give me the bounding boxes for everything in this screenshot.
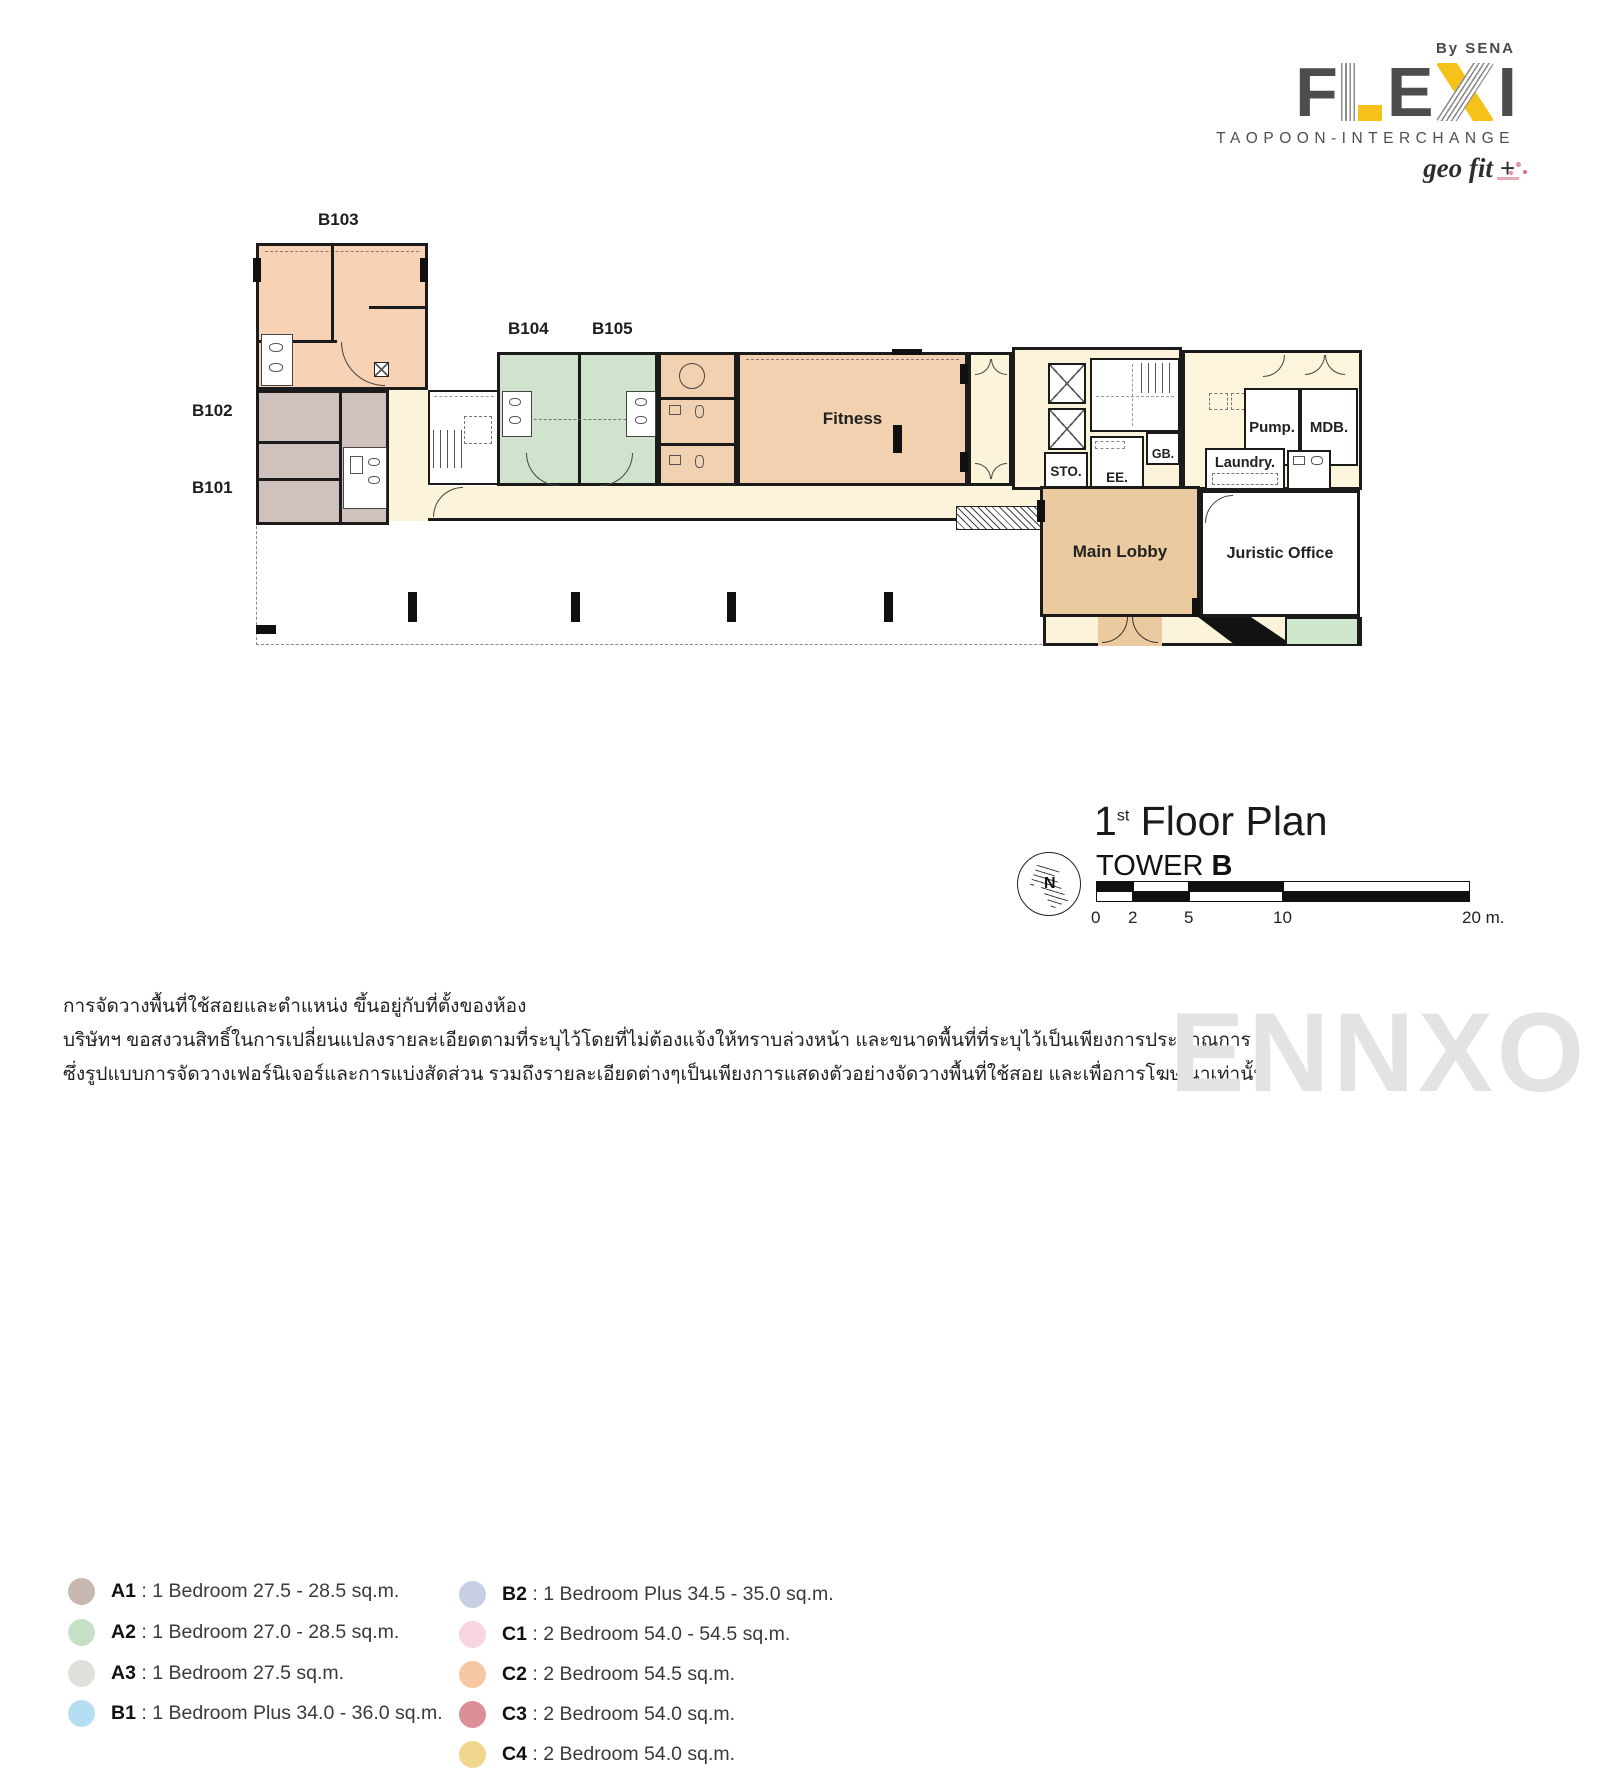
elevator-shaft (1048, 408, 1086, 450)
door-arc (975, 463, 991, 479)
juristic-office: Juristic Office (1200, 490, 1360, 617)
ennxo-watermark: ENNXO (1170, 988, 1588, 1117)
wc-fixture-icon (695, 405, 704, 418)
legend-dot-a2 (68, 1619, 95, 1646)
column-marker (571, 592, 580, 622)
legend-desc: 1 Bedroom Plus 34.5 - 35.0 sq.m. (543, 1583, 833, 1605)
entrance-door-arc (1132, 617, 1158, 643)
label-b104: B104 (508, 319, 549, 339)
main-lobby: Main Lobby (1040, 486, 1200, 617)
legend-code: C4 (502, 1743, 527, 1765)
door-arc (1325, 355, 1345, 375)
sink-fixture-icon (368, 476, 380, 484)
legend-item-b2: B2 : 1 Bedroom Plus 34.5 - 35.0 sq.m. (459, 1581, 834, 1608)
legend-sep: : (136, 1702, 152, 1724)
disclaimer: การจัดวางพื้นที่ใช้สอยและตำแหน่ง ขึ้นอยู… (63, 990, 1013, 1092)
bathroom-core (343, 447, 387, 509)
scale-tick-0: 0 (1091, 908, 1100, 928)
legend-item-a1: A1 : 1 Bedroom 27.5 - 28.5 sq.m. (68, 1578, 399, 1605)
legend-dot-b2 (459, 1581, 486, 1608)
legend-dot-b1 (68, 1700, 95, 1727)
tower-title: TOWER B (1096, 850, 1232, 883)
column-marker (408, 592, 417, 622)
legend-sep: : (527, 1743, 543, 1765)
shower-fixture-icon (350, 456, 363, 474)
title-block: 1st Floor Plan TOWER B N 0 2 5 10 20 m. (1000, 790, 1520, 940)
compass-icon: N (1017, 852, 1081, 916)
balcony-dashed-line (265, 251, 419, 252)
door-arc (991, 463, 1007, 479)
legend-dot-c4 (459, 1741, 486, 1768)
floor-plan-text: Floor Plan (1141, 798, 1328, 844)
legend-sep: : (136, 1662, 152, 1684)
legend-code: B1 (111, 1702, 136, 1724)
scale-segment (1189, 891, 1283, 902)
legend-desc: 2 Bedroom 54.0 sq.m. (543, 1703, 735, 1725)
legend-sep: : (136, 1621, 152, 1643)
floor-plan-page: { "colors": { "wall": "#1b1b1b", "peach"… (0, 0, 1600, 1131)
fitness-room: Fitness (737, 352, 968, 486)
label-b102: B102 (192, 401, 233, 421)
door-arc (526, 453, 559, 486)
electrical-room: EE. (1090, 436, 1144, 490)
floor-number: 1 (1094, 798, 1117, 844)
laundry-label: Laundry. (1207, 452, 1283, 474)
label-b103: B103 (318, 210, 359, 230)
interior-wall (331, 246, 334, 342)
tower-letter: B (1211, 850, 1232, 882)
legend-item-c3: C3 : 2 Bedroom 54.0 sq.m. (459, 1701, 735, 1728)
toilet-fixture-icon (509, 416, 521, 424)
scale-segment (1096, 891, 1133, 902)
corridor-vertical (389, 390, 428, 521)
wall-jamb (1192, 598, 1200, 618)
interior-wall (369, 306, 425, 309)
fitness-label: Fitness (740, 355, 965, 483)
legend-item-a2: A2 : 1 Bedroom 27.0 - 28.5 sq.m. (68, 1619, 399, 1646)
sink-fixture-icon (1293, 456, 1305, 465)
legend: A1 : 1 Bedroom 27.5 - 28.5 sq.m. A2 : 1 … (0, 780, 1000, 1010)
wall-jamb (253, 258, 261, 282)
legend-item-c1: C1 : 2 Bedroom 54.0 - 54.5 sq.m. (459, 1621, 790, 1648)
disclaimer-line-1: การจัดวางพื้นที่ใช้สอยและตำแหน่ง ขึ้นอยู… (63, 990, 1013, 1024)
legend-sep: : (527, 1583, 543, 1605)
legend-desc: 1 Bedroom 27.5 - 28.5 sq.m. (152, 1580, 399, 1602)
legend-item-c4: C4 : 2 Bedroom 54.0 sq.m. (459, 1741, 735, 1768)
legend-code: A2 (111, 1621, 136, 1643)
bathroom-box (626, 391, 656, 437)
corridor (389, 486, 1040, 521)
label-b105: B105 (592, 319, 633, 339)
stair-treads (1141, 363, 1175, 393)
interior-wall (259, 478, 341, 481)
column-marker (727, 592, 736, 622)
panel-dashed-box (1095, 441, 1125, 449)
stair-dashed-line (434, 396, 494, 397)
unit-b103 (256, 243, 428, 390)
toilet-fixture-icon (368, 458, 380, 466)
garbage-label: GB. (1148, 439, 1178, 468)
legend-sep: : (527, 1703, 543, 1725)
entrance-door-arc (1102, 617, 1128, 643)
ramp-hatch (956, 506, 1046, 530)
scale-tick-5: 5 (1184, 908, 1193, 928)
compass-north-label: N (1044, 875, 1056, 893)
interior-wall (661, 443, 734, 446)
entrance-vestibule (1098, 617, 1162, 646)
planter-green-patch (1285, 617, 1359, 646)
service-bathroom (1287, 450, 1331, 490)
page-title: 1st Floor Plan (1094, 798, 1328, 845)
legend-sep: : (527, 1663, 543, 1685)
legend-code: C3 (502, 1703, 527, 1725)
disclaimer-line-3: ซึ่งรูปแบบการจัดวางเฟอร์นิเจอร์และการแบ่… (63, 1058, 1013, 1092)
stairwell-core (1090, 358, 1180, 432)
legend-code: A3 (111, 1662, 136, 1684)
legend-code: B2 (502, 1583, 527, 1605)
legend-desc: 2 Bedroom 54.0 sq.m. (543, 1743, 735, 1765)
interior-wall (661, 397, 734, 400)
sink-fixture-icon (269, 363, 283, 372)
scale-row-bottom (1096, 891, 1470, 902)
wall-jamb (256, 625, 276, 634)
restrooms (658, 352, 737, 486)
stairwell-west (428, 390, 500, 485)
legend-dot-c2 (459, 1661, 486, 1688)
legend-sep: : (136, 1580, 152, 1602)
floor-plan: Fitness STO. EE. GB. Pump. MDB. (0, 0, 1600, 700)
disclaimer-line-2: บริษัทฯ ขอสงวนสิทธิ์ในการเปลี่ยนแปลงรายล… (63, 1024, 1013, 1058)
bathroom-box (261, 334, 293, 386)
legend-code: C1 (502, 1623, 527, 1645)
legend-dot-c1 (459, 1621, 486, 1648)
interior-wall (259, 441, 341, 444)
shaft-box (374, 362, 389, 377)
accessible-toilet-icon (679, 363, 705, 389)
door-arc (600, 453, 633, 486)
lobby-link-corridor (968, 352, 1012, 486)
scale-bar (1096, 881, 1470, 902)
stair-dashed-line (1132, 364, 1133, 426)
storage-room: STO. (1044, 452, 1088, 490)
toilet-fixture-icon (635, 416, 647, 424)
open-ground-area (256, 521, 1102, 645)
bathroom-box (502, 391, 532, 437)
storage-label: STO. (1046, 454, 1086, 488)
legend-desc: 2 Bedroom 54.5 sq.m. (543, 1663, 735, 1685)
wc-fixture-icon (695, 455, 704, 468)
door-arc (991, 359, 1007, 375)
garbage-room: GB. (1146, 432, 1180, 465)
scale-tick-2: 2 (1128, 908, 1137, 928)
legend-code: A1 (111, 1580, 136, 1602)
legend-sep: : (527, 1623, 543, 1645)
sink-fixture-icon (509, 398, 521, 406)
legend-item-a3: A3 : 1 Bedroom 27.5 sq.m. (68, 1660, 344, 1687)
tower-word: TOWER (1096, 850, 1203, 882)
wall-jamb (960, 364, 968, 384)
wall-jamb (1037, 500, 1045, 522)
stair-dashed-line (1096, 396, 1174, 397)
sink-fixture-icon (635, 398, 647, 406)
wc-fixture-icon (669, 405, 681, 415)
washer-row-dashed-box (1212, 473, 1278, 485)
wall-jamb (604, 352, 638, 355)
legend-dot-a1 (68, 1578, 95, 1605)
wall-jamb (892, 349, 922, 355)
toilet-fixture-icon (269, 343, 283, 352)
laundry-room: Laundry. (1205, 448, 1285, 490)
label-b101: B101 (192, 478, 233, 498)
elevator-shaft (1048, 363, 1086, 404)
wall-jamb (522, 352, 556, 355)
stair-landing (464, 416, 492, 444)
scale-segment (1283, 891, 1470, 902)
legend-desc: 2 Bedroom 54.0 - 54.5 sq.m. (543, 1623, 790, 1645)
unit-b104-b105 (497, 352, 658, 486)
equipment-dashed-box (1209, 393, 1228, 410)
door-arc (1305, 355, 1325, 375)
scale-segment (1133, 891, 1189, 902)
wc-fixture-icon (669, 455, 681, 465)
column-marker (884, 592, 893, 622)
legend-item-b1: B1 : 1 Bedroom Plus 34.0 - 36.0 sq.m. (68, 1700, 443, 1727)
floor-ordinal: st (1117, 807, 1129, 824)
toilet-fixture-icon (1311, 456, 1323, 465)
legend-item-c2: C2 : 2 Bedroom 54.5 sq.m. (459, 1661, 735, 1688)
legend-code: C2 (502, 1663, 527, 1685)
door-arc (975, 359, 991, 375)
legend-desc: 1 Bedroom Plus 34.0 - 36.0 sq.m. (152, 1702, 442, 1724)
scale-tick-10: 10 (1273, 908, 1292, 928)
interior-wall (339, 393, 342, 522)
legend-desc: 1 Bedroom 27.5 sq.m. (152, 1662, 344, 1684)
legend-desc: 1 Bedroom 27.0 - 28.5 sq.m. (152, 1621, 399, 1643)
stair-treads (433, 430, 463, 468)
legend-dot-a3 (68, 1660, 95, 1687)
unit-b102-b101 (256, 390, 389, 525)
door-arc (1263, 355, 1285, 377)
wall-jamb (420, 258, 428, 282)
scale-tick-20m: 20 m. (1462, 908, 1505, 928)
wall-jamb (960, 452, 968, 472)
legend-dot-c3 (459, 1701, 486, 1728)
main-lobby-label: Main Lobby (1043, 489, 1197, 614)
